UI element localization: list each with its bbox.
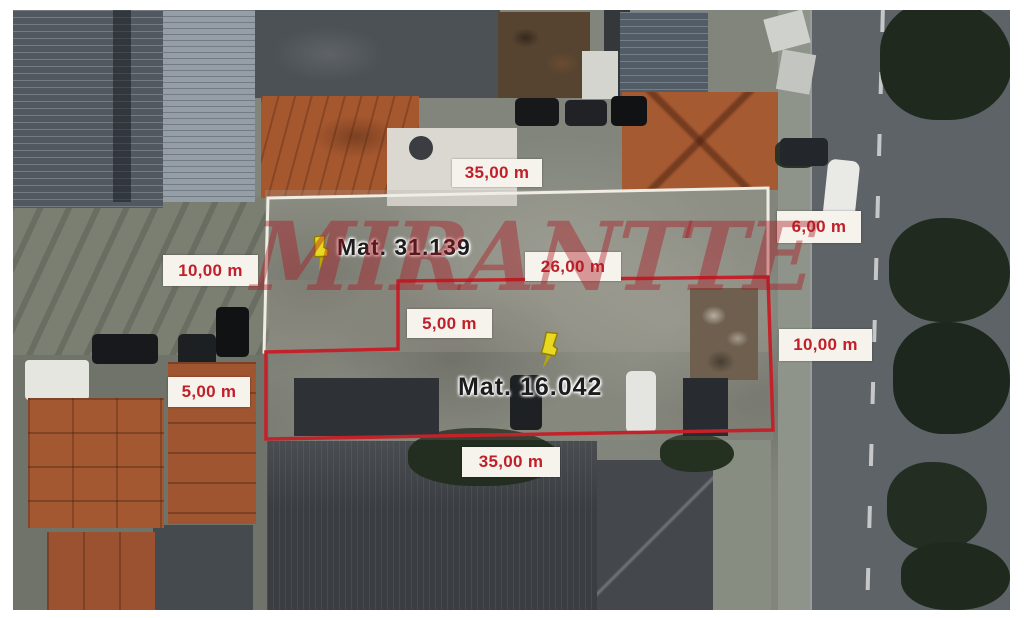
pushpin-icon-lot2: [534, 329, 566, 374]
lot2-outline-red: [266, 277, 773, 439]
measurement-label-right-side: 10,00 m: [779, 329, 872, 361]
lot-outlines: [13, 10, 1010, 610]
lot1-outline-white: [264, 188, 768, 352]
page: Mat. 31.139 Mat. 16.042 35,00 m 6,00 m 1…: [0, 0, 1024, 618]
satellite-photo: Mat. 31.139 Mat. 16.042 35,00 m 6,00 m 1…: [13, 10, 1010, 610]
pushpin-icon-lot1: [306, 232, 337, 273]
measurement-label-bottom-width: 35,00 m: [462, 447, 560, 477]
lot-label-mat-16042: Mat. 16.042: [458, 373, 602, 402]
measurement-label-step-depth: 5,00 m: [407, 309, 492, 338]
measurement-label-left-side-top: 10,00 m: [163, 255, 258, 286]
lot-label-mat-31139: Mat. 31.139: [337, 234, 471, 261]
measurement-label-top-width: 35,00 m: [452, 159, 542, 187]
measurement-label-left-step: 5,00 m: [168, 377, 250, 407]
measurement-label-right-frontage: 6,00 m: [777, 211, 861, 243]
measurement-label-inner-width: 26,00 m: [525, 252, 621, 281]
